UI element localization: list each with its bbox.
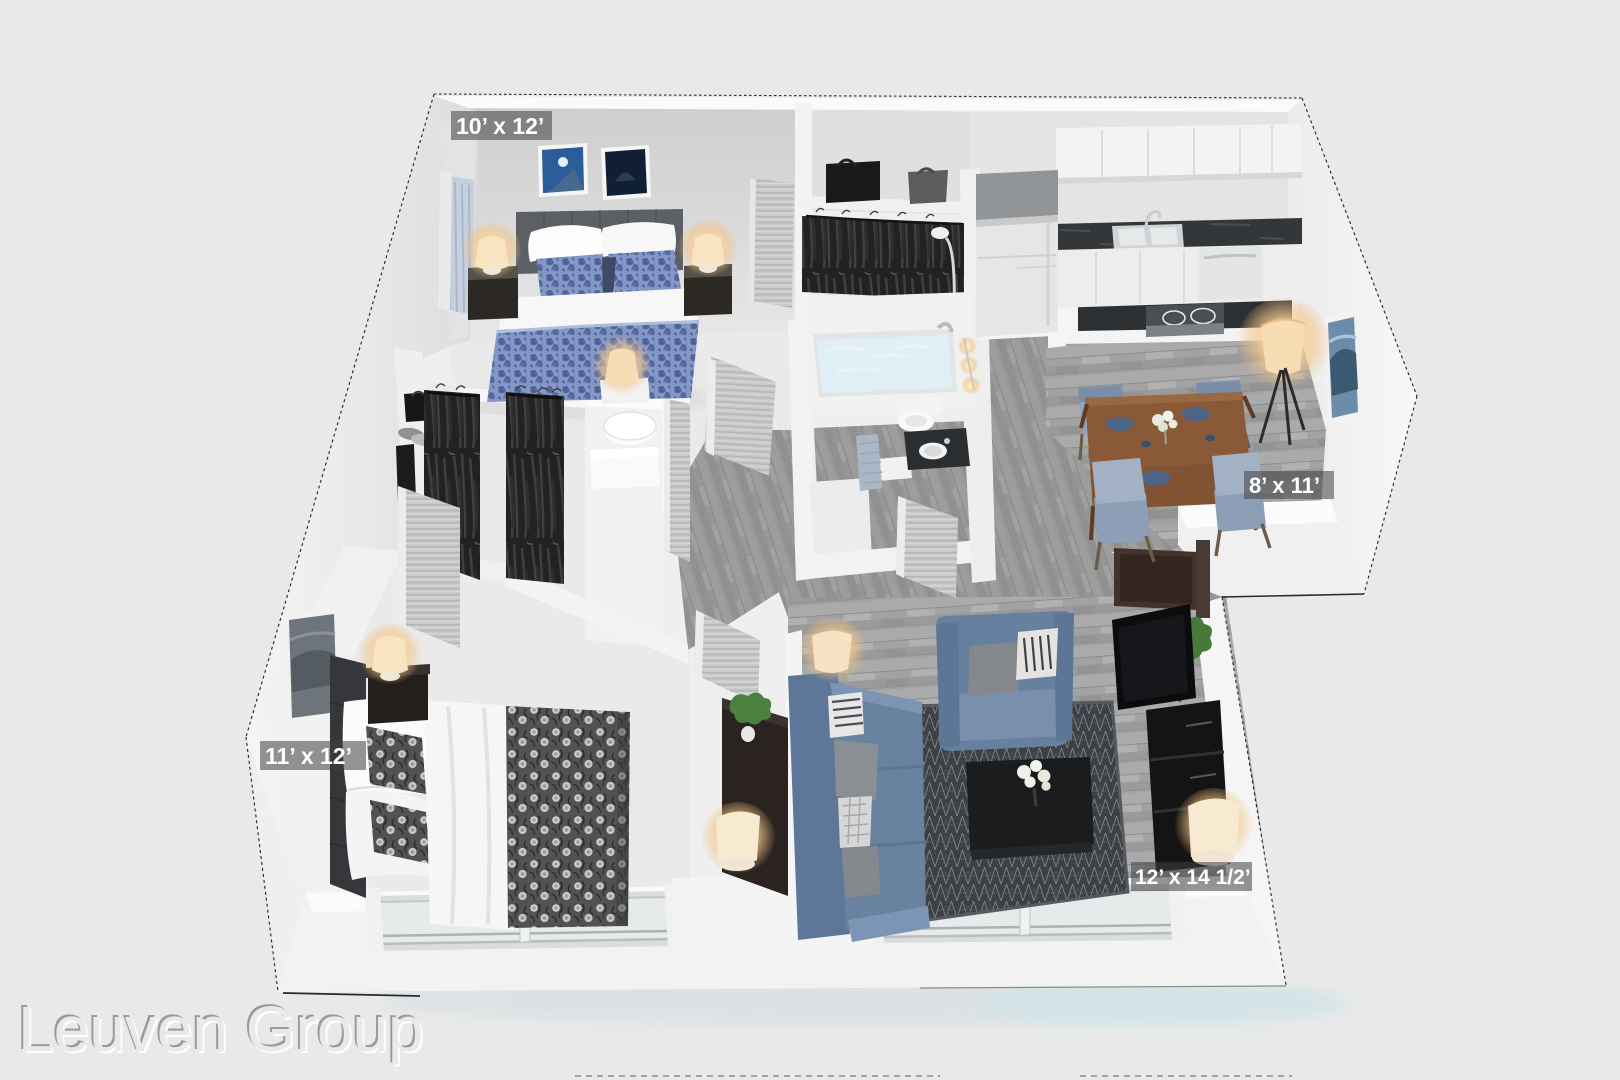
svg-text:12’ x 14 1/2’: 12’ x 14 1/2’	[1135, 866, 1251, 889]
svg-text:Leuven Group: Leuven Group	[18, 993, 424, 1065]
svg-text:10’ x 12’: 10’ x 12’	[456, 113, 544, 139]
svg-text:8’ x 11’: 8’ x 11’	[1249, 473, 1320, 498]
svg-text:11’ x 12’: 11’ x 12’	[265, 743, 352, 769]
